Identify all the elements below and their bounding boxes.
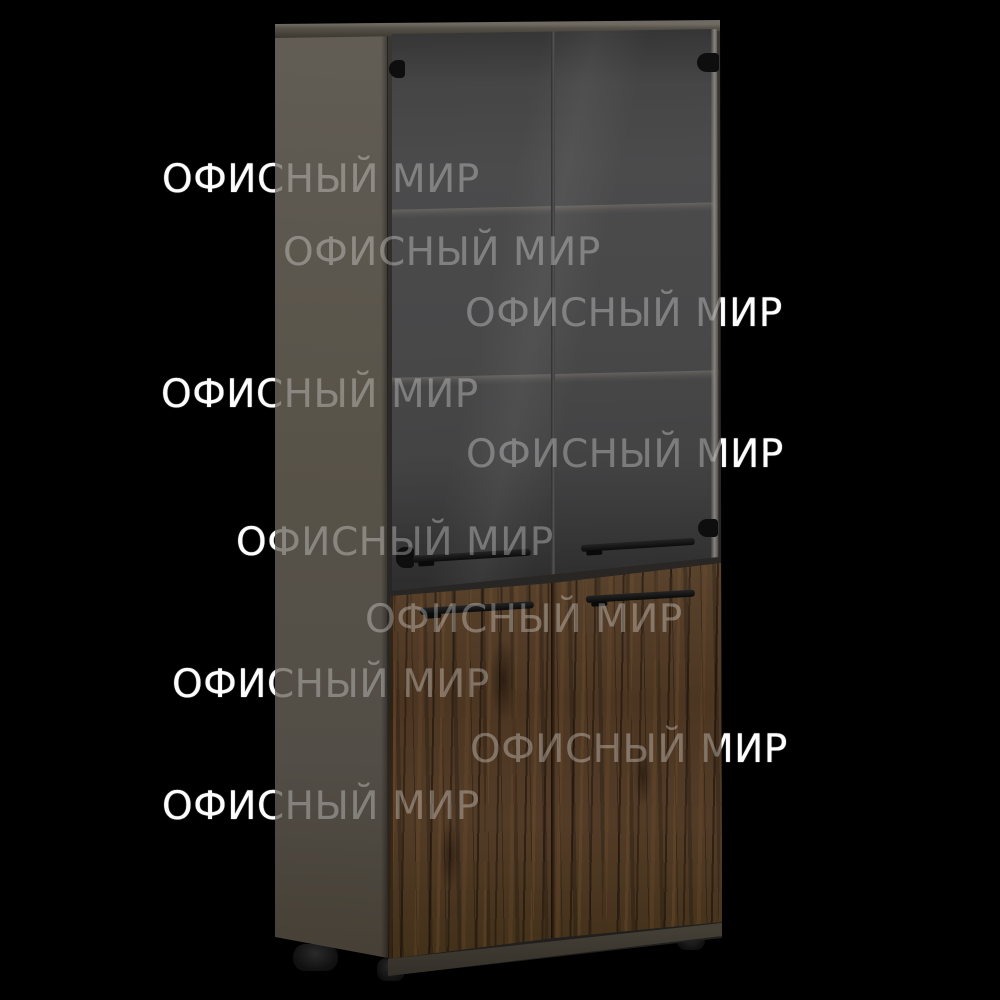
wood-doors-divider [551, 578, 555, 942]
glass-doors-divider [551, 31, 555, 585]
product-image-stage: ОФИСНЫЙ МИРОФИСНЫЙ МИРОФИСНЫЙ МИРОФИСНЫЙ… [0, 0, 1000, 1000]
glass-door-hinge-top-right [697, 53, 719, 72]
office-cabinet-render [0, 0, 1000, 1000]
side-panel-seam [381, 28, 388, 960]
cabinet-side-panel [275, 24, 388, 964]
glass-door-hinge-bottom-left [396, 547, 414, 568]
glass-door-edge-highlight [711, 28, 718, 566]
cabinet-foot-back-left [293, 944, 338, 971]
glass-reflection [391, 27, 720, 593]
glass-door-hinge-top-left [389, 60, 405, 78]
glass-doors-section [391, 27, 720, 593]
wood-doors-section [388, 560, 723, 962]
glass-door-hinge-bottom-right [698, 519, 718, 537]
